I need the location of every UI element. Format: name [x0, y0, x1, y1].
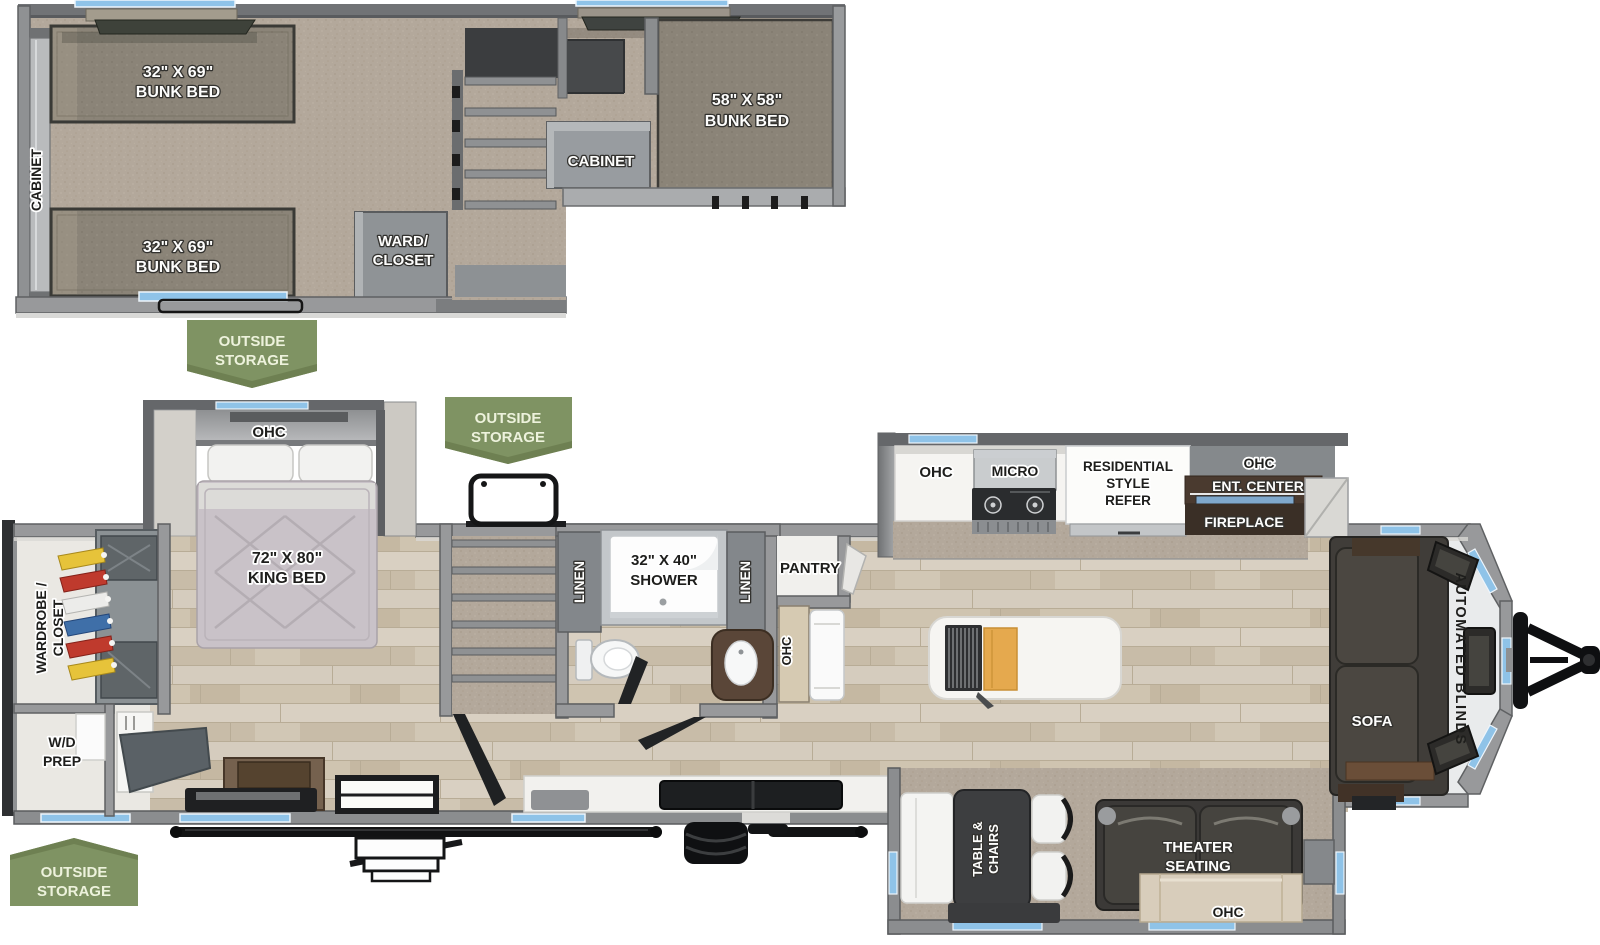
svg-text:STORAGE: STORAGE: [215, 352, 289, 369]
svg-text:32" X 69": 32" X 69": [143, 64, 213, 81]
svg-text:STORAGE: STORAGE: [37, 883, 111, 900]
svg-text:BUNK BED: BUNK BED: [705, 113, 789, 130]
svg-text:OUTSIDE: OUTSIDE: [219, 333, 286, 350]
svg-text:OHC: OHC: [1212, 904, 1243, 920]
svg-text:SHOWER: SHOWER: [630, 572, 698, 589]
svg-text:32" X 69": 32" X 69": [143, 239, 213, 256]
svg-text:OHC: OHC: [919, 464, 953, 481]
svg-text:PREP: PREP: [43, 753, 81, 769]
svg-text:THEATER: THEATER: [1163, 839, 1233, 856]
svg-text:AUTOMATED BLINDS: AUTOMATED BLINDS: [1452, 572, 1468, 745]
svg-text:KING BED: KING BED: [248, 570, 326, 587]
svg-text:RESIDENTIAL: RESIDENTIAL: [1083, 459, 1173, 474]
svg-text:CABINET: CABINET: [28, 148, 44, 211]
svg-text:LINEN: LINEN: [737, 561, 753, 603]
svg-text:CABINET: CABINET: [568, 153, 635, 170]
svg-text:32" X 40": 32" X 40": [631, 552, 697, 569]
svg-text:STYLE: STYLE: [1106, 476, 1150, 491]
svg-text:CLOSET: CLOSET: [50, 599, 66, 656]
svg-text:OHC: OHC: [1243, 455, 1274, 471]
svg-text:BUNK BED: BUNK BED: [136, 84, 220, 101]
svg-text:TABLE &: TABLE &: [970, 821, 985, 876]
svg-text:BUNK BED: BUNK BED: [136, 259, 220, 276]
svg-text:58" X 58": 58" X 58": [712, 92, 782, 109]
svg-text:OHC: OHC: [252, 424, 286, 441]
svg-text:LINEN: LINEN: [571, 561, 587, 603]
svg-text:72" X 80": 72" X 80": [252, 550, 322, 567]
svg-text:FIREPLACE: FIREPLACE: [1204, 514, 1283, 530]
svg-text:CLOSET: CLOSET: [373, 252, 434, 269]
svg-text:STORAGE: STORAGE: [471, 429, 545, 446]
svg-text:OHC: OHC: [779, 636, 794, 666]
svg-text:W/D: W/D: [48, 734, 75, 750]
svg-text:MICRO: MICRO: [992, 463, 1039, 479]
svg-text:CHAIRS: CHAIRS: [986, 824, 1001, 874]
svg-text:ENT. CENTER: ENT. CENTER: [1212, 478, 1304, 494]
svg-text:OUTSIDE: OUTSIDE: [41, 864, 108, 881]
svg-text:SOFA: SOFA: [1352, 713, 1393, 730]
svg-text:WARD/: WARD/: [378, 233, 429, 250]
svg-text:SEATING: SEATING: [1165, 858, 1231, 875]
svg-text:WARDROBE /: WARDROBE /: [33, 582, 49, 673]
svg-text:OUTSIDE: OUTSIDE: [475, 410, 542, 427]
svg-text:PANTRY: PANTRY: [780, 560, 840, 577]
svg-text:REFER: REFER: [1105, 493, 1151, 508]
